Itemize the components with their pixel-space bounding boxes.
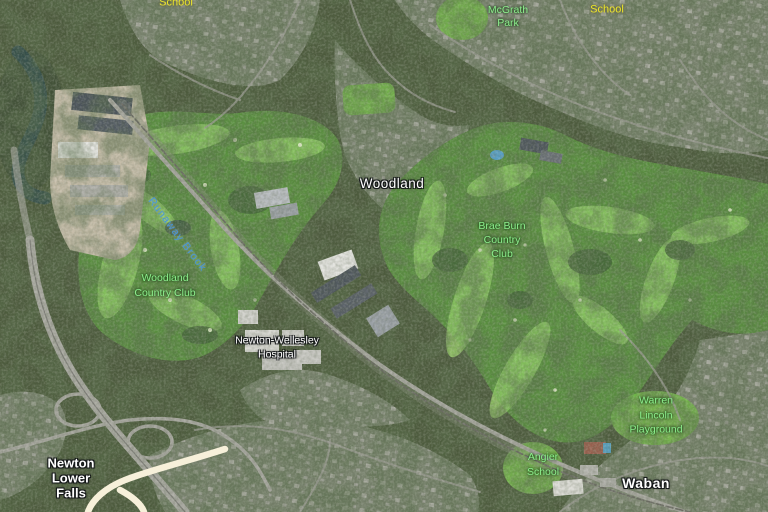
map-label-line: Country Club [134, 286, 195, 301]
map-label-woodland-country-club: WoodlandCountry Club [134, 271, 195, 301]
map-label-woodland: Woodland [360, 176, 425, 192]
map-label-line: McGrath [488, 3, 528, 17]
map-label-runaway-brook: Runaway Brook [145, 195, 209, 274]
map-label-line: Country [478, 233, 525, 247]
map-label-line: School [527, 465, 559, 480]
map-label-line: Runaway Brook [145, 195, 209, 274]
map-label-warren-lincoln-playground: WarrenLincolnPlayground [629, 393, 682, 437]
map-label-waban: Waban [622, 475, 670, 491]
map-label-school-northwest: School [159, 0, 193, 10]
map-label-line: Lincoln [629, 408, 682, 423]
map-label-line: Playground [629, 422, 682, 437]
map-label-line: Woodland [360, 176, 425, 192]
map-label-line: Waban [622, 475, 670, 491]
map-label-line: Angier [527, 450, 559, 465]
map-label-line: Lower [48, 471, 95, 486]
map-label-line: Hospital [235, 348, 319, 362]
map-label-angier-school: AngierSchool [527, 450, 559, 480]
map-label-line: School [590, 4, 624, 17]
map-label-school-northeast: School [590, 4, 624, 17]
map-label-line: Warren [629, 393, 682, 408]
map-label-line: Falls [48, 486, 95, 501]
map-label-line: School [159, 0, 193, 10]
label-layer: SchoolRichardMcGrathParkSchoolWoodlandBr… [0, 0, 768, 512]
map-label-line: Newton-Wellesley [235, 335, 319, 349]
map-label-newton-wellesley-hospital: Newton-WellesleyHospital [235, 335, 319, 362]
map-label-richard-mcgrath-park: RichardMcGrathPark [488, 0, 528, 30]
map-label-line: Brae Burn [478, 219, 525, 233]
map-label-line: Club [478, 247, 525, 261]
map-label-line: Park [488, 17, 528, 31]
map-label-line: Woodland [134, 271, 195, 286]
map-label-brae-burn-country-club: Brae BurnCountryClub [478, 219, 525, 261]
map-label-newton-lower-falls: NewtonLowerFalls [48, 456, 95, 501]
map-viewport[interactable]: SchoolRichardMcGrathParkSchoolWoodlandBr… [0, 0, 768, 512]
map-label-line: Newton [48, 456, 95, 471]
